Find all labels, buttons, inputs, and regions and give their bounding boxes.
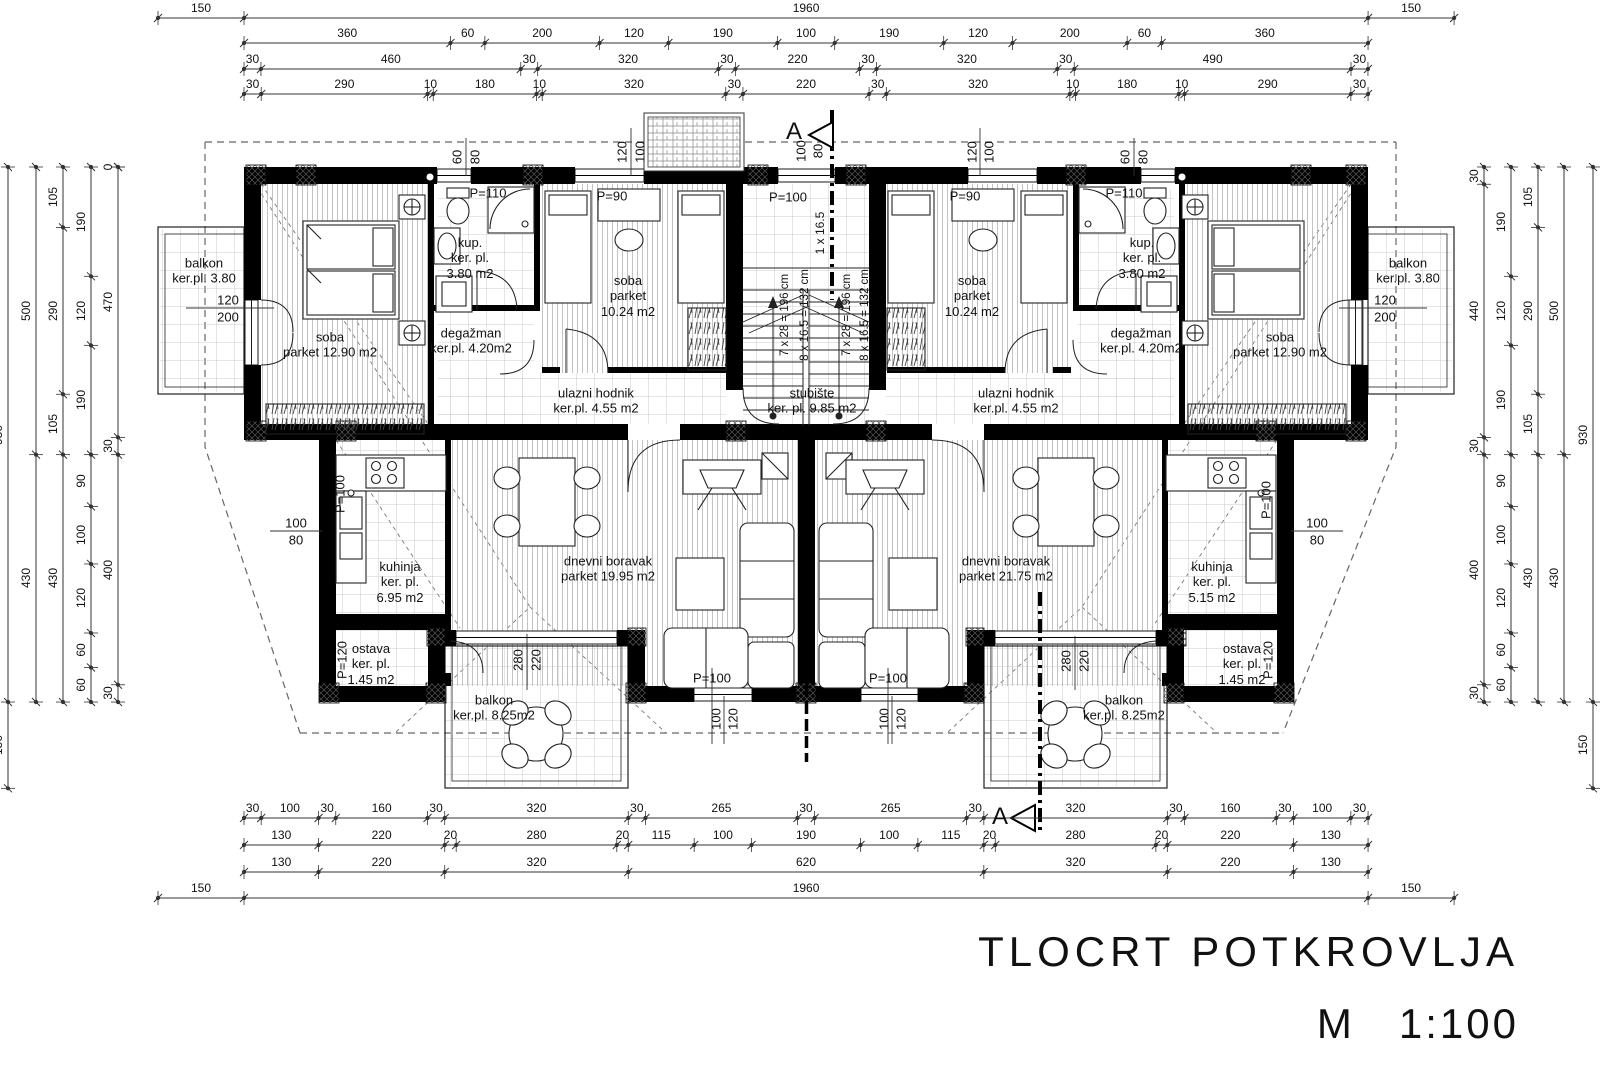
drawing-title: TLOCRT POTKROVLJA: [978, 928, 1519, 976]
floor-plan-sheet: 6080120100100801201006080P=110P=90P=100P…: [0, 0, 1607, 1080]
section-marker-triangle: [809, 122, 833, 148]
drawing-scale: M 1:100: [1317, 1000, 1519, 1048]
chimney: [644, 113, 744, 171]
floor-plan-drawing: [0, 0, 1607, 1080]
